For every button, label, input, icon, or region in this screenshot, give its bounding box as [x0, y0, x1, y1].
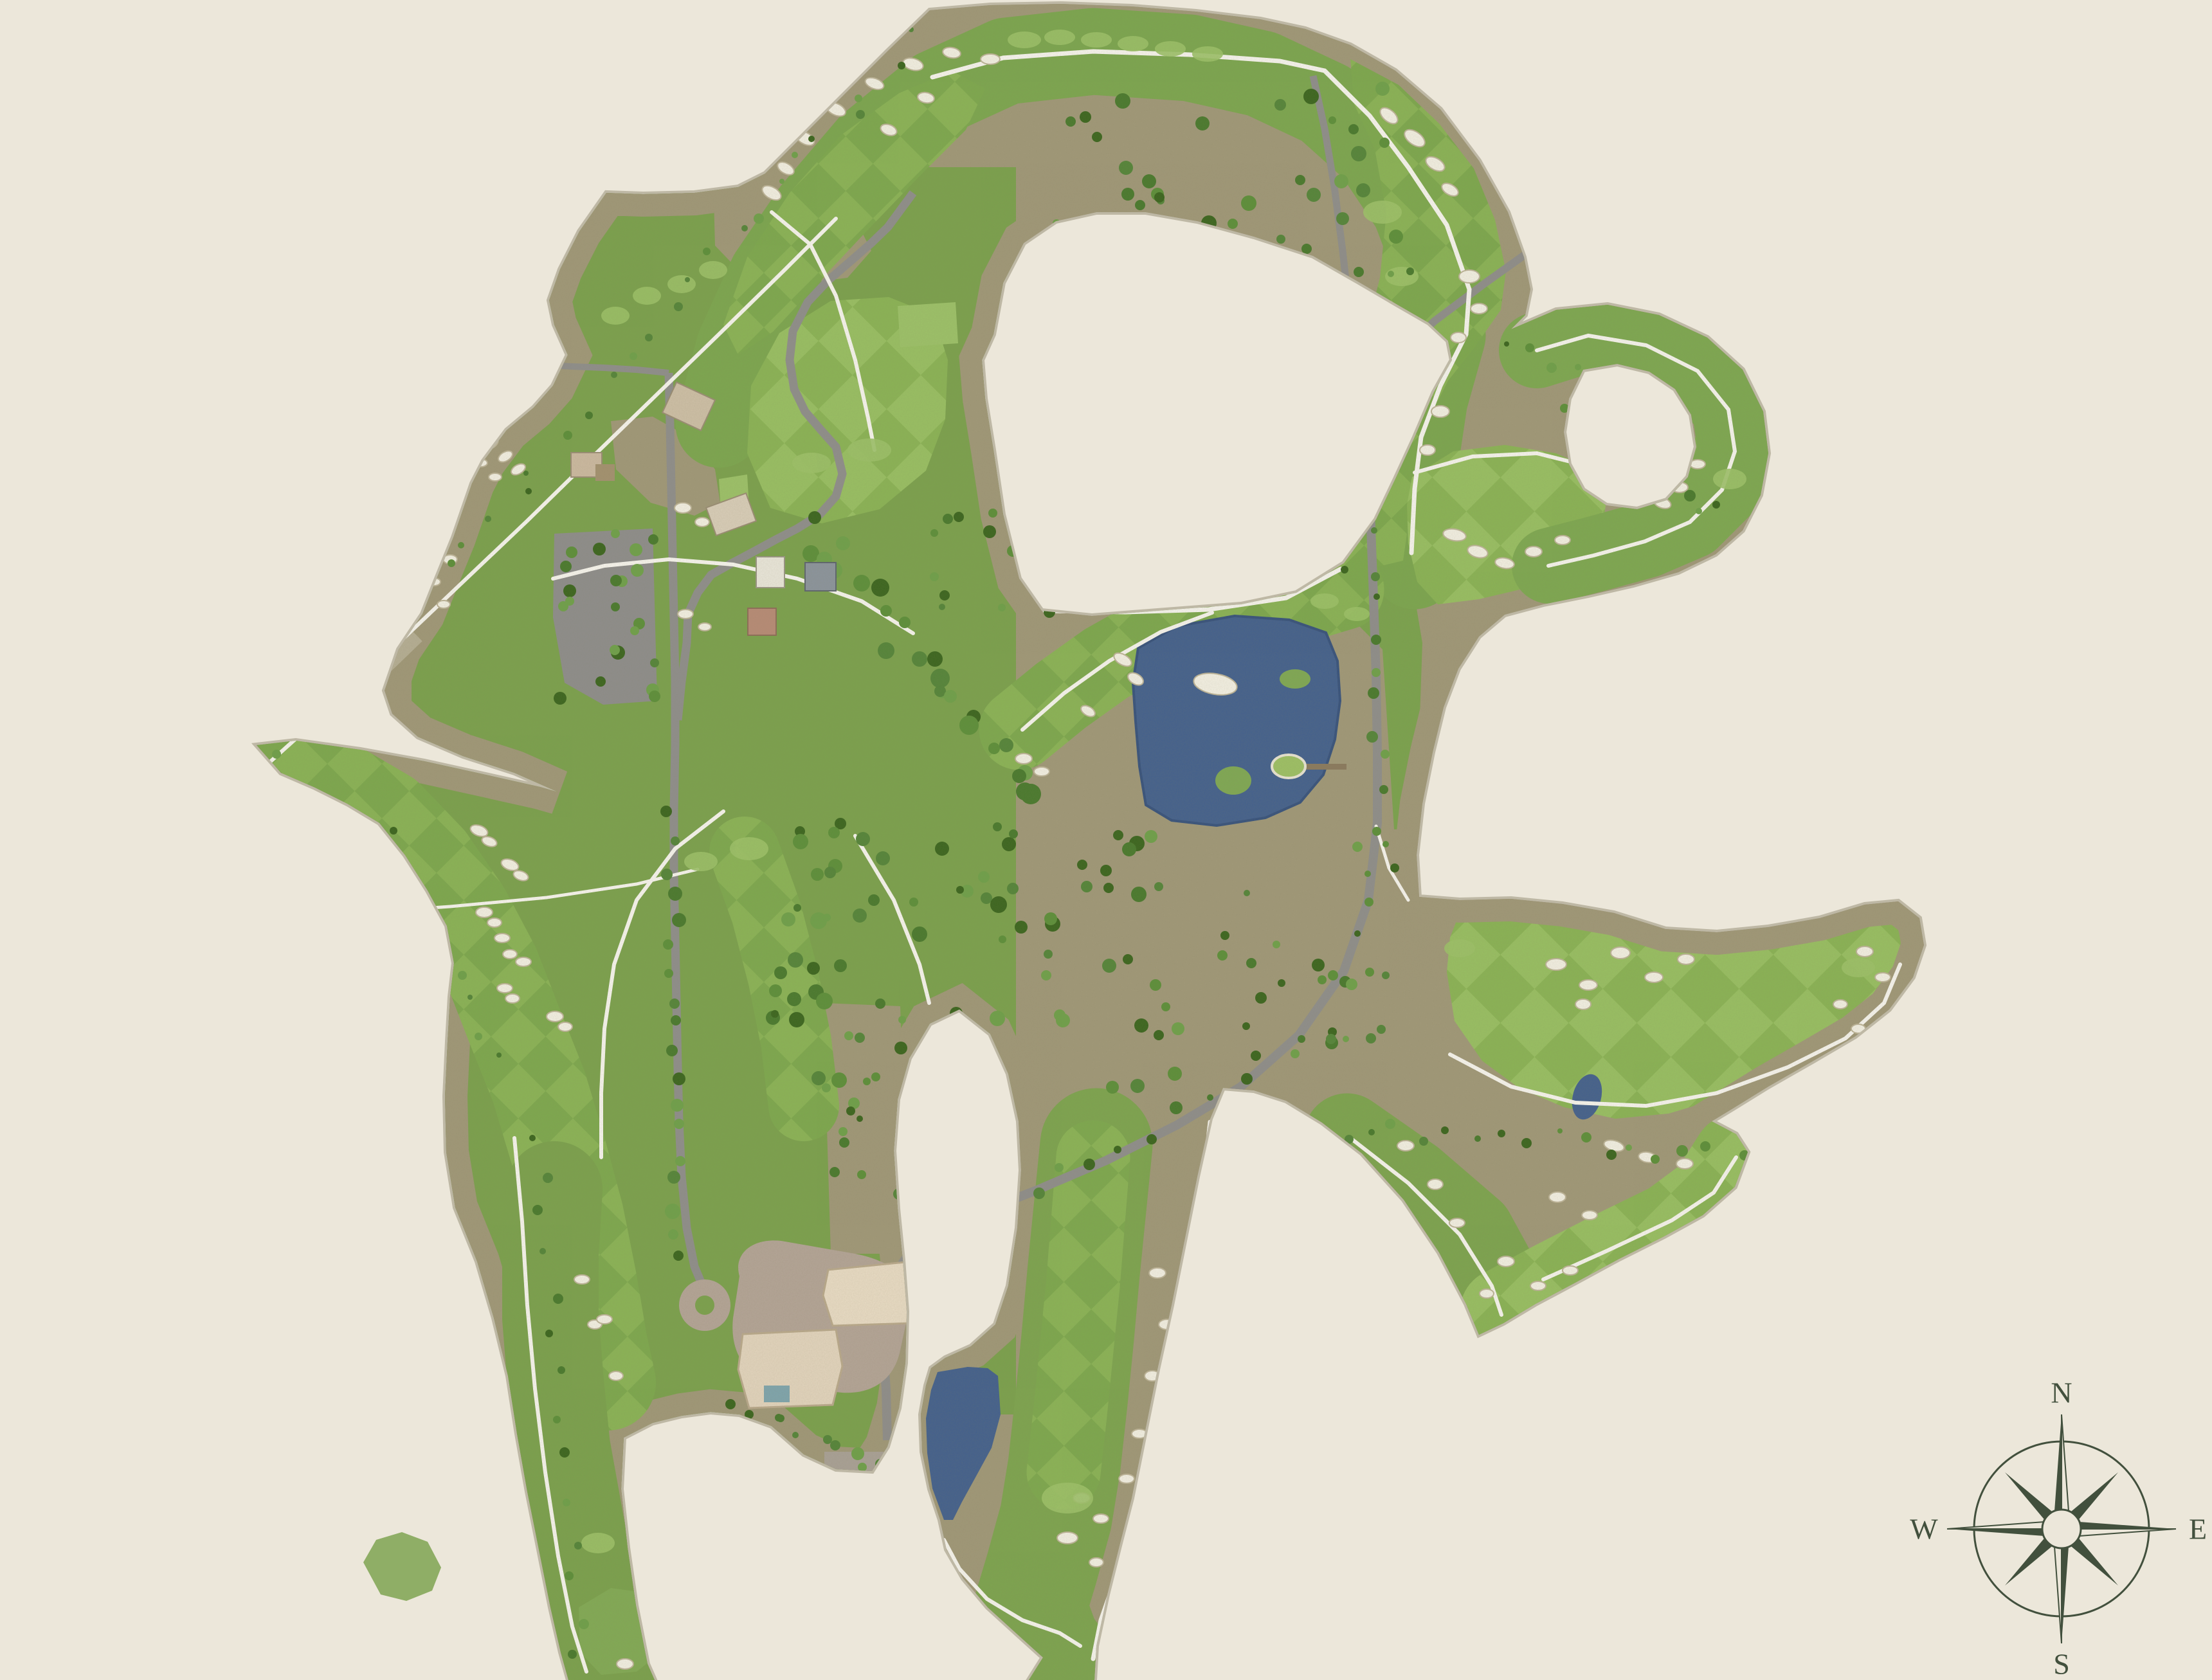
svg-text:N: N: [2051, 1377, 2072, 1409]
svg-text:E: E: [2189, 1513, 2207, 1546]
svg-text:W: W: [1910, 1513, 1938, 1546]
svg-text:S: S: [2053, 1648, 2070, 1680]
